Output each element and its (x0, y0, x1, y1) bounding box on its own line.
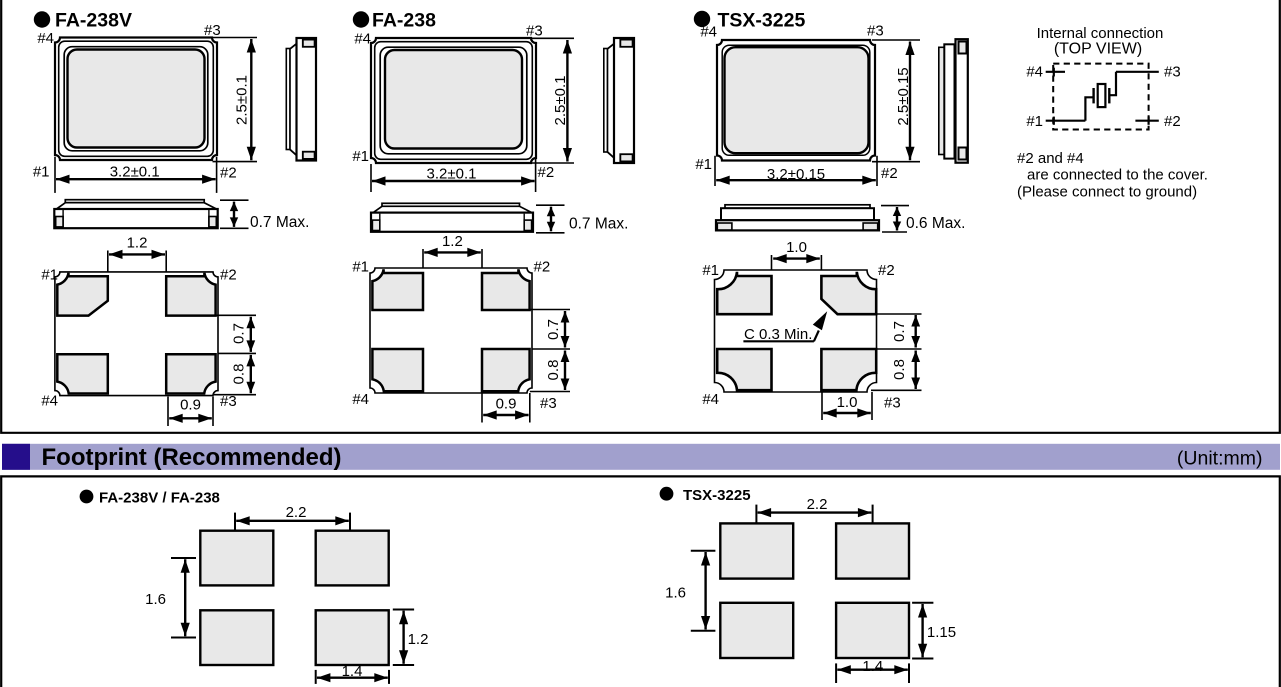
svg-text:0.9: 0.9 (496, 396, 517, 413)
svg-text:0.7: 0.7 (545, 319, 562, 340)
svg-text:#3: #3 (867, 23, 884, 40)
svg-text:#4: #4 (702, 391, 719, 408)
svg-text:#4: #4 (41, 393, 58, 410)
svg-text:#3: #3 (220, 393, 237, 410)
svg-text:TSX-3225: TSX-3225 (683, 487, 751, 504)
svg-text:#2: #2 (1164, 113, 1181, 130)
svg-text:#4: #4 (354, 31, 371, 48)
svg-text:0.7 Max.: 0.7 Max. (569, 215, 628, 232)
svg-text:0.7 Max.: 0.7 Max. (250, 214, 309, 231)
svg-text:#1: #1 (41, 266, 58, 283)
svg-text:#3: #3 (526, 23, 543, 40)
svg-text:#4: #4 (37, 30, 54, 47)
svg-text:(Please connect to ground): (Please connect to ground) (1017, 184, 1197, 201)
svg-text:1.6: 1.6 (145, 591, 166, 608)
svg-text:#2: #2 (220, 266, 237, 283)
svg-text:#3: #3 (540, 395, 557, 412)
svg-text:(TOP VIEW): (TOP VIEW) (1054, 41, 1142, 58)
svg-text:0.8: 0.8 (231, 364, 248, 385)
svg-text:#1: #1 (695, 156, 712, 173)
svg-text:1.0: 1.0 (786, 239, 807, 256)
svg-text:0.9: 0.9 (180, 397, 201, 414)
svg-text:3.2±0.1: 3.2±0.1 (110, 163, 160, 180)
svg-text:Internal connection: Internal connection (1037, 25, 1164, 42)
svg-text:1.4: 1.4 (862, 658, 883, 675)
svg-text:FA-238: FA-238 (372, 10, 436, 32)
svg-text:#4: #4 (352, 391, 369, 408)
svg-text:#2: #2 (220, 165, 237, 182)
svg-text:#1: #1 (1026, 113, 1043, 130)
svg-text:1.15: 1.15 (927, 624, 956, 641)
svg-text:2.5±0.1: 2.5±0.1 (234, 75, 251, 125)
svg-text:#3: #3 (204, 22, 221, 39)
svg-text:3.2±0.1: 3.2±0.1 (427, 166, 477, 183)
svg-text:#2: #2 (538, 164, 555, 181)
svg-text:Footprint (Recommended): Footprint (Recommended) (42, 444, 342, 471)
svg-text:#4: #4 (700, 24, 717, 41)
svg-text:1.4: 1.4 (342, 663, 363, 680)
svg-text:1.6: 1.6 (665, 585, 686, 602)
svg-text:#1: #1 (702, 262, 719, 279)
svg-text:#1: #1 (33, 164, 50, 181)
svg-text:2.2: 2.2 (286, 504, 307, 521)
svg-text:FA-238V / FA-238: FA-238V / FA-238 (99, 490, 220, 507)
svg-text:0.7: 0.7 (231, 323, 248, 344)
svg-text:1.2: 1.2 (408, 631, 429, 648)
svg-text:0.8: 0.8 (545, 360, 562, 381)
svg-text:1.0: 1.0 (837, 394, 858, 411)
svg-text:0.8: 0.8 (891, 359, 908, 380)
svg-text:#2: #2 (534, 259, 551, 276)
svg-text:#2 and #4: #2 and #4 (1017, 150, 1084, 167)
svg-text:#3: #3 (884, 395, 901, 412)
svg-text:#1: #1 (352, 259, 369, 276)
svg-text:are connected to the cover.: are connected to the cover. (1027, 166, 1208, 183)
svg-text:0.7: 0.7 (891, 321, 908, 342)
svg-text:#2: #2 (881, 165, 898, 182)
svg-text:#3: #3 (1164, 64, 1181, 81)
svg-text:(Unit:mm): (Unit:mm) (1177, 448, 1263, 470)
svg-text:2.2: 2.2 (807, 496, 828, 513)
svg-text:#1: #1 (352, 148, 369, 165)
svg-text:3.2±0.15: 3.2±0.15 (767, 166, 825, 183)
svg-text:1.2: 1.2 (442, 233, 463, 250)
svg-text:2.5±0.15: 2.5±0.15 (895, 67, 912, 125)
svg-text:2.5±0.1: 2.5±0.1 (552, 76, 569, 126)
svg-text:FA-238V: FA-238V (55, 10, 132, 32)
svg-text:#2: #2 (878, 262, 895, 279)
svg-text:0.6 Max.: 0.6 Max. (906, 215, 965, 232)
svg-text:1.2: 1.2 (127, 235, 148, 252)
svg-text:TSX-3225: TSX-3225 (718, 10, 806, 32)
svg-text:#4: #4 (1026, 64, 1043, 81)
